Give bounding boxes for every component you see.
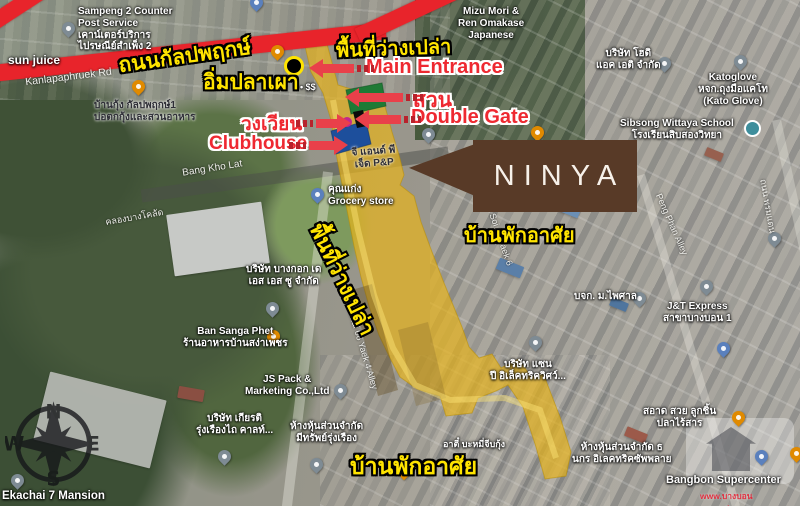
compass-rose: N E S W bbox=[5, 392, 102, 492]
ninya-logo-text: NINYA bbox=[485, 160, 625, 193]
main-entrance-arrow bbox=[322, 64, 354, 73]
poi-label-sun-juice: sun juice bbox=[8, 53, 60, 67]
compass-s: S bbox=[47, 468, 61, 491]
poi-label-grocery: คุณแก่ง Grocery store bbox=[328, 184, 394, 208]
compass-w: W bbox=[5, 433, 24, 456]
poi-label-js-pack: JS Pack & Marketing Co.,Ltd bbox=[245, 374, 329, 398]
compass-e: E bbox=[87, 433, 100, 456]
clubhouse-arrow bbox=[309, 141, 335, 150]
double-gate-annotation: Double Gate bbox=[411, 106, 529, 129]
poi-label-thanakorn: ห้างหุ้นส่วนจำกัด ธ นกร อิเลคทริคซัพพลาย bbox=[572, 442, 672, 466]
satellite-map: Kanlapaphruek Rd Bang Kho Lat คลองบางโคล… bbox=[0, 0, 800, 506]
price-level: • $$ bbox=[300, 82, 316, 93]
bangbon-url: www.บางบอนซุปเปอร์.com bbox=[700, 489, 800, 506]
school-badge-icon[interactable] bbox=[744, 120, 761, 137]
poi-label-paisal: บจก. ม.ไพศาล bbox=[574, 291, 637, 303]
poi-label-meesap: ห้างหุ้นส่วนจำกัด มีทรัพย์รุ่งเรือง bbox=[290, 421, 363, 445]
compass-n: N bbox=[45, 401, 61, 424]
poi-label-kiat: บริษัท เกียรติ รุ่งเรืองไถ คาลท์... bbox=[196, 413, 273, 437]
poi-label-bangkok-dss: บริษัท บางกอก เด เอส เอส ซู จำกัด bbox=[246, 264, 321, 288]
ninya-logo-box: NINYA bbox=[473, 140, 637, 212]
residential-annotation-right: บ้านพักอาศัย bbox=[464, 219, 575, 251]
poi-label-katoglove: Katoglove หจก.ถุงมือแคโท (Kato Glove) bbox=[698, 72, 768, 107]
poi-label-baan-kung: บ้านกุ้ง กัลปพฤกษ์1 บ่อตกกุ้งและสวนอาหาร bbox=[94, 100, 196, 124]
poi-label-gnp: จี แอนด์ พี เจ็ด P&P bbox=[351, 145, 396, 172]
poi-label-jnt: J&T Express สาขาบางบอน 1 bbox=[663, 301, 732, 325]
roundabout-arrow bbox=[316, 119, 338, 128]
double-gate-arrow bbox=[368, 115, 401, 124]
poi-label-mansion: Ekachai 7 Mansion bbox=[2, 490, 105, 504]
residential-annotation-bottom: บ้านพักอาศัย bbox=[350, 449, 477, 485]
poi-label-hodi: บริษัท โฮดิ แอค เอติ จำกัด bbox=[596, 48, 661, 72]
poi-label-mizu: Mizu Mori & Ren Omakase Japanese bbox=[458, 6, 524, 41]
poi-label-sibsong: Sibsong Wittaya School โรงเรียนสิบสองวิท… bbox=[620, 118, 734, 142]
poi-label-san-electric: บริษัท แซน ปี อิเล็คทริควิศว์... bbox=[490, 359, 566, 383]
poi-label-ban-sanga: Ban Sanga Phet ร้านอาหารบ้านสง่าเพชร bbox=[183, 326, 288, 350]
poi-label-saard: สอาด สวย ลูกชิ้น ปลาไร้สาร bbox=[643, 406, 716, 430]
poi-label-bangbon: Bangbon Supercenter bbox=[666, 474, 781, 487]
garden-arrow bbox=[358, 93, 403, 102]
main-entrance-annotation: Main Entrance bbox=[366, 56, 503, 79]
grill-fish-annotation: อิ่มปลาเผา bbox=[203, 66, 299, 99]
